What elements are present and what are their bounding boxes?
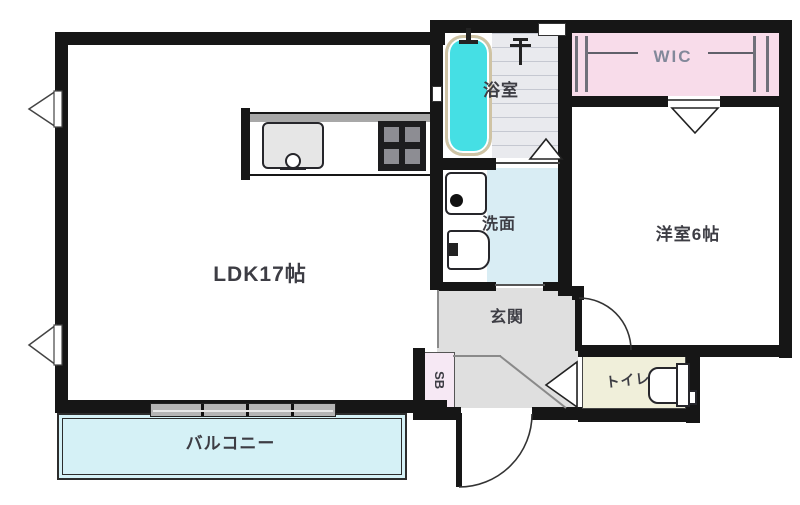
door-arc-front [459,414,532,487]
counter-end-cap [241,108,250,180]
window-glass-line [153,410,333,412]
wall-top-ldk [55,32,445,45]
wall-wic-bottom-left [558,96,668,107]
label-ldk: LDK17帖 [185,263,335,286]
wall-bath-bottom [430,158,496,170]
label-balcony: バルコニー [158,435,303,454]
label-bathroom: 浴室 [468,82,534,101]
label-wic: WIC [638,48,708,67]
wic-rod-end [575,36,578,92]
wall-toilet-bottom [578,409,700,422]
vent-marker-top [29,91,56,127]
shower-icon [510,44,531,47]
wall-wic-bottom-right [720,96,792,107]
bathroom-window [538,23,566,36]
stove-burner [405,149,420,164]
label-western-room: 洋室6帖 [628,226,748,245]
wall-entry-bottom-right [532,407,582,420]
stove-burner [405,127,420,142]
washing-machine-pan [445,172,487,215]
label-entrance: 玄関 [475,309,539,327]
wall-wash-bottom-left [438,282,496,291]
bathroom-wall-niche [432,86,442,102]
wic-rod-end [766,36,769,92]
door-leaf-western [575,297,582,351]
shower-icon [513,38,528,41]
floorplan: LDK17帖 浴室 WIC 洋室6帖 洗面 玄関 トイレ SB バルコニー [0,0,800,505]
washing-machine-drain [450,194,463,207]
wall-western-bottom [578,345,792,357]
door-leaf-front [456,413,462,487]
sink-faucet-icon [280,167,306,170]
wall-top-right [430,20,792,33]
stove-burner [384,127,399,142]
bathtub-faucet-icon [459,40,478,44]
balcony-sliding-window [150,403,336,417]
stove-burner [384,149,399,164]
room-ldk [68,45,430,400]
shower-icon [519,38,522,65]
wall-wash-bottom-right [543,282,560,291]
label-shoe-box: SB [432,366,446,394]
stove [378,121,426,171]
wall-right [779,20,792,358]
room-entrance [437,288,578,408]
wic-rod-end [585,36,588,92]
boundary-ldk-entrance [437,290,439,348]
washbasin-faucet-icon [449,243,458,256]
wall-wet-column-right [558,20,572,296]
entry-step-line [453,355,501,357]
wall-left [55,32,68,413]
vent-marker-bottom [29,325,56,365]
label-washroom: 洗面 [467,216,531,234]
toilet-handle [688,390,697,405]
wic-rod-end [753,36,756,92]
